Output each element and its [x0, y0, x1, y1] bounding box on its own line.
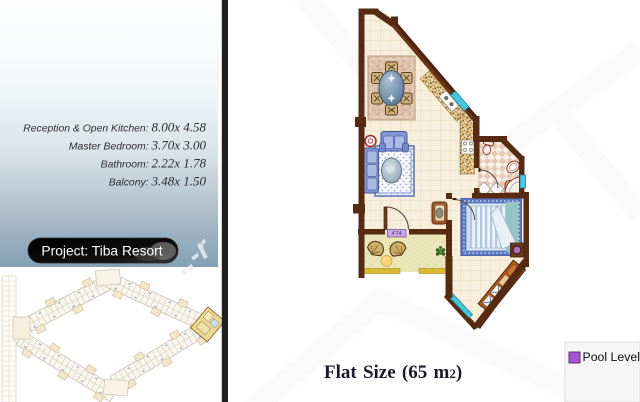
svg-text:4'74: 4'74 — [392, 231, 402, 237]
svg-text:Project: Tiba Resort: Project: Tiba Resort — [41, 244, 162, 259]
svg-text:Pool Level: Pool Level — [583, 350, 640, 364]
svg-text:Flat Size (65 m2): Flat Size (65 m2) — [324, 362, 462, 383]
